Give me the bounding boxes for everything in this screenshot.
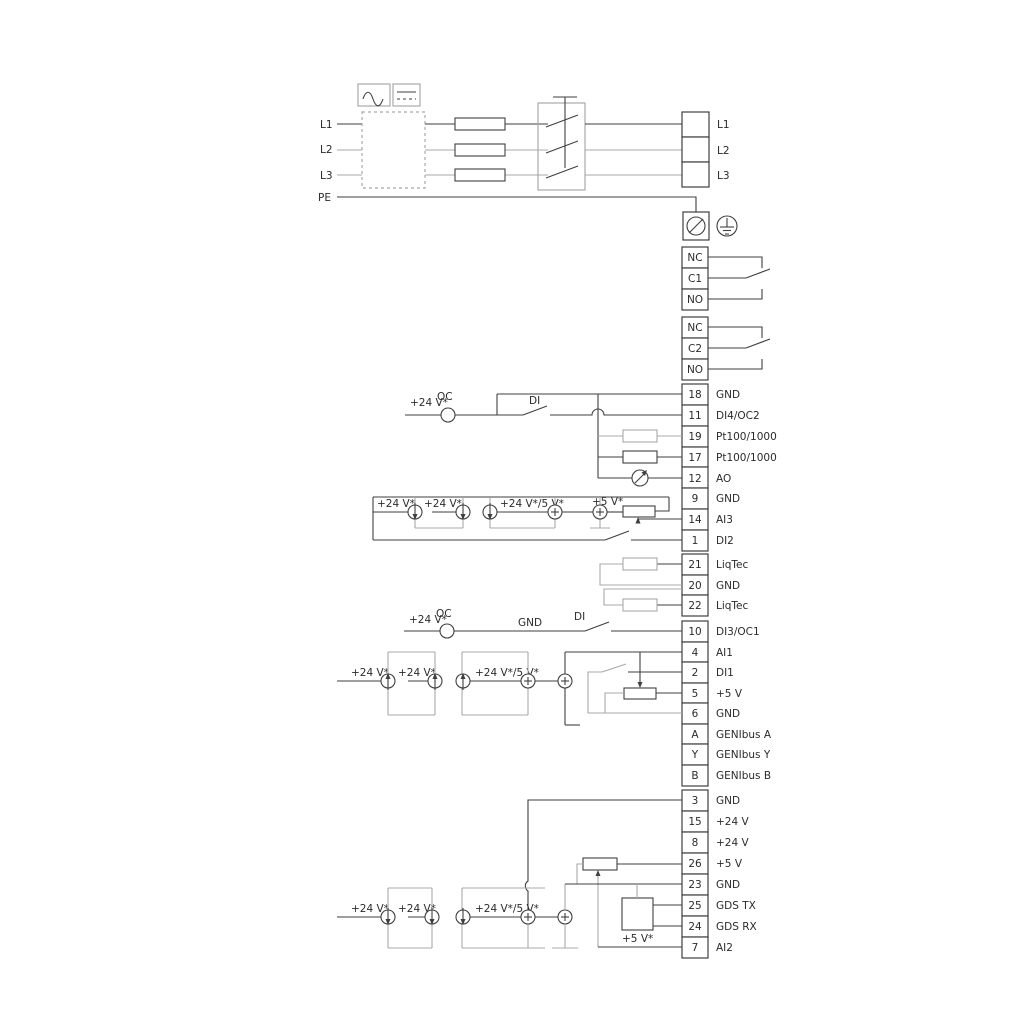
terminal-number: 9: [692, 493, 699, 505]
liqtec-resistor-icon: [623, 599, 657, 611]
fuse-l1-icon: [455, 118, 505, 130]
liqtec-resistor-icon: [623, 558, 657, 570]
terminal-number: 26: [688, 858, 702, 870]
power-in-pe-label: PE: [318, 192, 331, 204]
power-out-l3-label: L3: [717, 170, 730, 182]
terminal-group3-block: 3 15 8 26 23 25 24 7 GND +24 V +24 V +5 …: [682, 790, 757, 958]
relay2-nc-label: NC: [687, 322, 702, 334]
ai1-sensor-row: +24 V* +24 V* +24 V*/5 V*: [337, 652, 682, 725]
terminal-number: 4: [692, 647, 699, 659]
terminal-label: +24 V: [716, 816, 749, 828]
terminal-label: AO: [716, 473, 731, 485]
terminal-number: 22: [688, 600, 701, 612]
earth-ground-icon: [717, 216, 737, 236]
liqtec-terminal-block: 21 20 22 LiqTec GND LiqTec: [600, 554, 749, 616]
gnd-wire-label: GND: [518, 617, 542, 629]
terminal-label: Pt100/1000: [716, 452, 777, 464]
terminal-label: DI2: [716, 535, 734, 547]
terminal-label: AI3: [716, 514, 733, 526]
fuse-l2-icon: [455, 144, 505, 156]
terminal-label: GENIbus B: [716, 770, 771, 782]
ai2-gds-sensor-row: +24 V* +24 V* +24 V*/5 V* +5 V*: [337, 800, 682, 948]
terminal-label: GND: [716, 708, 740, 720]
terminal-number: A: [691, 729, 699, 741]
ac-wave-icon: [363, 92, 383, 106]
terminal-number: 10: [688, 626, 701, 638]
terminal-label: LiqTec: [716, 600, 749, 612]
current-source-icon: [381, 673, 395, 690]
output-terminal-block: L1 L2 L3: [682, 112, 730, 187]
relay1-no-label: NO: [687, 294, 703, 306]
relay2-block: NC C2 NO: [682, 317, 770, 380]
converter-icons: [358, 84, 420, 106]
digital-input-label: DI: [574, 611, 585, 623]
terminal-number: 23: [688, 879, 701, 891]
setpoint-potentiometer-icon: [605, 688, 682, 713]
terminal-label: GENIbus A: [716, 729, 772, 741]
terminal-number: 18: [688, 389, 701, 401]
supply-24v-label: +24 V*: [424, 498, 462, 510]
main-disconnect-switch: [538, 97, 682, 190]
terminal-label: AI2: [716, 942, 733, 954]
terminal-number: 20: [688, 580, 701, 592]
terminal-number: 21: [688, 559, 701, 571]
terminal-number: 6: [692, 708, 699, 720]
terminal-number: 1: [692, 535, 699, 547]
terminal-group2-block: 10 4 2 5 6 A Y B DI3/OC1 AI1 DI1 +5 V GN…: [682, 621, 772, 786]
current-source-icon: [483, 503, 497, 520]
open-collector-label: OC: [436, 608, 452, 620]
terminal-number: 2: [692, 667, 699, 679]
open-collector-icon: [441, 408, 455, 422]
pt100-resistor-icon: [623, 430, 657, 442]
power-in-l2-label: L2: [320, 144, 333, 156]
relay1-c1-label: C1: [688, 273, 702, 285]
terminal-number: 3: [692, 795, 699, 807]
terminal-number: B: [691, 770, 698, 782]
di3-oc1-wiring: +24 V* OC GND DI: [404, 608, 682, 638]
group1-wiring: +24 V* OC DI: [405, 391, 682, 486]
terminal-label: AI1: [716, 647, 733, 659]
current-source-icon: [456, 673, 470, 690]
terminal-label: +24 V: [716, 837, 749, 849]
voltage-source-icon: [521, 674, 535, 688]
terminal-label: GND: [716, 795, 740, 807]
open-collector-label: OC: [437, 391, 453, 403]
terminal-number: 11: [688, 410, 701, 422]
di4-switch-icon: [523, 406, 547, 415]
terminal-number: 25: [688, 900, 701, 912]
terminal-label: Pt100/1000: [716, 431, 777, 443]
terminal-label: GENIbus Y: [716, 749, 771, 761]
power-in-l3-label: L3: [320, 170, 333, 182]
switch-blade-l1: [546, 115, 578, 127]
relay2-no-label: NO: [687, 364, 703, 376]
terminal-number: 8: [692, 837, 699, 849]
power-out-l1-label: L1: [717, 119, 730, 131]
voltage-source-icon: [558, 674, 572, 688]
power-input-section: L1 L2 L3 PE: [318, 119, 362, 204]
terminal-number: 24: [688, 921, 702, 933]
voltage-source-icon: [558, 910, 572, 924]
relay1-contact-icon: [708, 257, 770, 299]
power-out-l2-label: L2: [717, 145, 730, 157]
terminal-label: DI3/OC1: [716, 626, 760, 638]
di2-switch-icon: [605, 531, 629, 540]
terminal-label: DI1: [716, 667, 734, 679]
current-source-icon: [428, 673, 442, 690]
pump-wiring-diagram: L1 L2 L3 PE L1 L2: [0, 0, 1024, 1024]
terminal-label: GND: [716, 493, 740, 505]
voltage-source-icon: [521, 910, 535, 924]
relay1-nc-label: NC: [687, 252, 702, 264]
current-source-icon: [456, 908, 470, 925]
terminal-number: 14: [688, 514, 702, 526]
terminal-number: 17: [688, 452, 701, 464]
terminal-label: GND: [716, 580, 740, 592]
ai3-sensor-row: +24 V* +24 V* +24 V*/5 V* +5 V*: [373, 496, 682, 540]
terminal-number: 12: [688, 473, 701, 485]
terminal-number: Y: [691, 749, 699, 761]
terminal-label: GND: [716, 879, 740, 891]
terminal-label: GND: [716, 389, 740, 401]
fuse-l3-icon: [455, 169, 505, 181]
voltage-source-icon: [548, 505, 562, 519]
terminal-label: LiqTec: [716, 559, 749, 571]
di3-switch-icon: [585, 622, 609, 631]
terminal-label: GDS RX: [716, 921, 757, 933]
fuse-symbols: [425, 118, 548, 181]
wiring-diagram-page: L1 L2 L3 PE L1 L2: [0, 0, 1024, 1024]
terminal-label: +5 V: [716, 688, 743, 700]
pt100-resistor-icon: [623, 451, 657, 463]
supply-5v-label: +5 V*: [622, 933, 653, 945]
analog-output-meter-icon: [632, 470, 648, 486]
terminal-number: 15: [688, 816, 701, 828]
open-collector-icon: [440, 624, 454, 638]
gds-sensor-box: [622, 884, 682, 930]
terminal-label: DI4/OC2: [716, 410, 760, 422]
terminal-number: 5: [692, 688, 699, 700]
drive-input-box: [362, 112, 425, 188]
power-in-l1-label: L1: [320, 119, 333, 131]
terminal-number: 7: [692, 942, 699, 954]
terminal-label: +5 V: [716, 858, 743, 870]
terminal-label: GDS TX: [716, 900, 756, 912]
di1-switch-icon: [602, 664, 626, 672]
digital-input-label: DI: [529, 395, 540, 407]
terminal-group1-block: 18 11 19 17 12 9 14 1 GND DI4/OC2 Pt100/…: [682, 384, 777, 551]
pe-ground-section: [337, 197, 737, 240]
relay1-block: NC C1 NO: [682, 247, 770, 310]
dc-icon: [393, 84, 420, 106]
switch-blade-l3: [546, 166, 578, 178]
relay2-contact-icon: [708, 327, 770, 369]
liqtec-sensor-wiring: [600, 558, 682, 611]
relay2-c2-label: C2: [688, 343, 702, 355]
voltage-source-icon: [593, 505, 607, 519]
terminal-number: 19: [688, 431, 701, 443]
switch-blade-l2: [546, 141, 578, 153]
